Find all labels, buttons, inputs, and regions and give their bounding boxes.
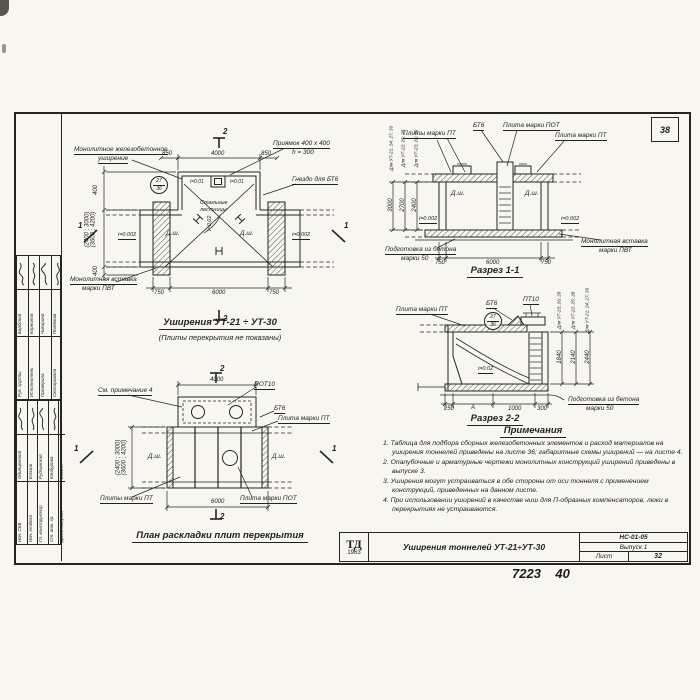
s11-height-value-2: 2400 <box>412 190 418 220</box>
signature <box>17 401 27 434</box>
logo-year: 1963 <box>347 550 360 556</box>
stamp-name: Рудзинский <box>38 434 48 481</box>
s22-height-label-0: Для УТ-23; 26; 29 <box>558 281 563 339</box>
section-mark-1-left: 1 <box>78 222 82 230</box>
plan-pit-slope-right: i=0.01 <box>230 180 244 186</box>
s22-slope: i=0.02 <box>478 366 493 374</box>
s22-prep-2: марки 50 <box>586 405 613 412</box>
plan-stairs-label-1: Стальные <box>200 200 228 206</box>
stamp-row: Дата выпуска 1963 г. <box>58 401 65 544</box>
s11-height-label-2: Для УТ-23; 26; 29 <box>415 119 420 177</box>
stamp-name: Барбский <box>17 289 28 336</box>
s22-detail-marker: 27 36 <box>484 312 502 330</box>
stamp-role: Дата выпуска <box>59 481 65 544</box>
note-item-2: 2. Опалубочные и арматурные чертежи моно… <box>383 459 683 477</box>
stamp-name: Полякова <box>52 289 63 336</box>
s22-dim-1: 250 <box>444 406 454 412</box>
s22-height-label-1: Для УТ-22; 25; 28 <box>572 281 577 339</box>
issue-row: Выпуск 1 <box>580 543 687 553</box>
section-mark-2-top: 2 <box>223 128 227 136</box>
signature <box>38 401 48 434</box>
s11-plates-pt-left: Плиты марки ПТ <box>403 130 456 139</box>
s11-plate-pt-right: Плита марки ПТ <box>555 132 607 141</box>
s22-bt6: БТ6 <box>486 300 497 309</box>
plan-expansion-joint-left: Д.ш. <box>166 230 180 237</box>
dim-bot-right: 750 <box>269 290 279 296</box>
s11-height-label-0: Для УТ-21; 24; 27; 30 <box>390 117 395 179</box>
sheet-row: Лист 32 <box>580 552 687 561</box>
stamp-role: Исполнитель <box>29 336 40 399</box>
stamp-name: 1963 г. <box>59 434 65 481</box>
blueprint-sheet: { "sheet": { "corner_number": "38", "han… <box>0 0 700 700</box>
dim-top-left: 850 <box>162 151 172 157</box>
signature <box>49 401 59 434</box>
sp-dim-bottom: 6000 <box>211 499 224 505</box>
s22-dim-4: 300 <box>537 406 547 412</box>
plan-slope-right: i=0.002 <box>292 232 310 240</box>
stamp-empty <box>59 401 65 434</box>
scan-smudge-small <box>2 44 6 53</box>
s22-pt10: ПТ10 <box>523 296 539 305</box>
signature <box>52 256 63 289</box>
scan-smudge <box>0 0 9 16</box>
sp-plates-pt: Плиты марки ПТ <box>100 495 153 504</box>
stamp-name: Елизов <box>28 434 38 481</box>
notes-block: Примечания 1. Таблица для подбора сборны… <box>383 426 683 516</box>
plan-slope-center: i=0.02 <box>207 211 213 235</box>
title-block: ТД 1963 Уширения тоннелей УТ-21÷УТ-30 НС… <box>339 532 688 562</box>
logo-cell: ТД 1963 <box>340 533 368 561</box>
section-2-2-drawing: Плита марки ПТ БТ6 ПТ10 27 36 i=0.02 Под… <box>390 292 685 432</box>
notes-title: Примечания <box>383 426 683 436</box>
s22-height-value-1: 2140 <box>571 342 577 372</box>
stamp-row: Исполнитель Корнилов <box>28 256 40 399</box>
stamp-row: Скопировала Полякова <box>51 256 63 399</box>
code-row: НС-01-05 <box>580 533 687 543</box>
plan-insert-label-2: марки ПВТ <box>82 285 115 292</box>
note-item-4: 4. При использовании уширений в качестве… <box>383 497 683 515</box>
logo-td: ТД <box>346 538 362 550</box>
stamp-row: Проверила Чикирина <box>39 256 51 399</box>
sheet-number-cell: 32 <box>629 552 687 561</box>
detail-sheet: 36 <box>487 321 499 328</box>
sidebar-stamp-upper: Рук. группы Барбский Исполнитель Корнило… <box>16 255 61 400</box>
sheet-number: 32 <box>654 553 662 560</box>
s11-insert-2: марки ПВТ <box>599 247 632 254</box>
plan-title: Уширения УТ-21 ÷ УТ-30 <box>115 318 325 328</box>
sidebar-stamp-lower: Нач. СКБ Одинцовский Нач. отдела Елизов … <box>16 400 61 545</box>
signature <box>40 256 51 289</box>
plan-widening-label-2: уширение <box>98 155 128 164</box>
signature <box>29 256 40 289</box>
plan-stairs-label-2: лестницы <box>200 207 227 213</box>
issue-number: Выпуск 1 <box>620 544 648 551</box>
dim-left-mid: (2400 ; 3000) (3600 ; 4200) <box>85 199 100 261</box>
dim-left-mid-2: (3600 ; 4200) <box>91 199 97 261</box>
title-cell: Уширения тоннелей УТ-21÷УТ-30 <box>368 533 579 561</box>
sp-section-1-right: 1 <box>332 445 336 453</box>
stamp-role: Проверила <box>40 336 51 399</box>
s11-joint-right: Д.ш. <box>525 190 539 197</box>
s22-height-value-0: 1840 <box>557 342 563 372</box>
plan-pit-slope-left: i=0.01 <box>190 180 204 186</box>
detail-number: 27 <box>485 315 501 320</box>
stamp-row: Нач. отдела Елизов <box>27 401 38 544</box>
dim-left-bot: 400 <box>93 259 99 283</box>
section-1-1-drawing: Плиты марки ПТ БТ6 Плита марки ПОТ Плита… <box>385 118 685 283</box>
plan-drawing: Монолитное железобетонное уширение Приям… <box>70 118 360 350</box>
stamp-role: Нач. отдела <box>28 481 38 544</box>
stamp-role: Рук. группы <box>17 336 28 399</box>
signature <box>17 256 28 289</box>
dim-top-right: 850 <box>261 151 271 157</box>
stamp-row: Нач. СКБ Одинцовский <box>17 401 27 544</box>
sp-plate-pot: Плита марки ПОТ <box>240 495 297 504</box>
s11-height-value-0: 3000 <box>388 190 394 220</box>
sp-section-2-bottom: 2 <box>220 513 224 521</box>
dim-bot-left: 750 <box>154 290 164 296</box>
s22-dim-3: 1000 <box>508 406 521 412</box>
s22-plate-pt: Плита марки ПТ <box>396 306 448 315</box>
slab-plan-title: План раскладки плит перекрытия <box>100 531 340 541</box>
stamp-role: Гл. конструктор <box>38 481 48 544</box>
sp-dim-left: (2400 ; 3000) (3600 ; 4200) <box>116 427 131 489</box>
plan-socket-label: Гнездо для БТ6 <box>292 176 338 185</box>
section-2-2-title: Разрез 2-2 <box>425 414 565 424</box>
detail-sheet: 36 <box>153 185 165 192</box>
s22-dim-2: А <box>471 405 475 411</box>
s11-slope-right: i=0.002 <box>561 216 579 224</box>
plan-expansion-joint-right: Д.ш. <box>240 230 254 237</box>
stamp-role: Ст. инж. гр. <box>49 481 59 544</box>
s11-height-value-1: 2700 <box>400 190 406 220</box>
s11-height-label-1: Для УТ-22; 25; 28 <box>402 119 407 177</box>
sp-bt6: БТ6 <box>274 405 285 414</box>
sp-section-2-top: 2 <box>220 365 224 373</box>
s11-bt6: БТ6 <box>473 122 484 131</box>
s22-height-value-2: 2440 <box>585 342 591 372</box>
section-1-1-title: Разрез 1-1 <box>425 266 565 276</box>
stamp-name: Корнилов <box>29 289 40 336</box>
stamp-row: Рук. группы Барбский <box>17 256 28 399</box>
stamp-name: Чикирина <box>40 289 51 336</box>
signature <box>28 401 38 434</box>
s22-height-label-2: Для УТ-21; 24; 27; 30 <box>586 279 591 341</box>
stamp-name: Кондурова <box>49 434 59 481</box>
plan-detail-marker: 27 36 <box>150 176 168 194</box>
sp-see-note: См. примечание 4 <box>98 387 152 396</box>
stamp-role: Скопировала <box>52 336 63 399</box>
section-1-1-geometry <box>385 118 685 283</box>
s11-plate-pot: Плита марки ПОТ <box>503 122 560 131</box>
dim-top-mid: 4000 <box>211 151 224 157</box>
stamp-name: Одинцовский <box>17 434 27 481</box>
code-column: НС-01-05 Выпуск 1 Лист 32 <box>579 533 687 561</box>
sp-section-1-left: 1 <box>74 445 78 453</box>
note-item-3: 3. Уширения могут устраиваться в обе сто… <box>383 478 683 496</box>
s11-prep-2: марки 50 <box>401 255 428 262</box>
plan-pit-label-2: h = 300 <box>292 149 314 156</box>
sheet-label: Лист <box>596 553 613 560</box>
stamp-role: Нач. СКБ <box>17 481 27 544</box>
s11-slope-left: i=0.002 <box>419 216 437 224</box>
sp-joint-right: Д.ш. <box>272 453 286 460</box>
handwritten-archive-number: 7223 40 <box>512 566 570 581</box>
plan-subtitle: (Плиты перекрытия не показаны) <box>115 334 325 342</box>
document-code: НС-01-05 <box>619 534 647 541</box>
sp-joint-left: Д.ш. <box>148 453 162 460</box>
stamp-row: Ст. инж. гр. Кондурова <box>48 401 59 544</box>
sp-plate-pt: Плита марки ПТ <box>278 415 330 424</box>
sp-dim-left-2: (3600 ; 4200) <box>122 427 128 489</box>
drawing-title: Уширения тоннелей УТ-21÷УТ-30 <box>403 542 545 552</box>
sheet-label-cell: Лист <box>580 552 629 561</box>
sp-dim-top: 4000 <box>210 377 223 383</box>
sp-pot10: ПОТ10 <box>254 381 275 390</box>
note-item-1: 1. Таблица для подбора сборных железобет… <box>383 440 683 458</box>
section-mark-1-right: 1 <box>344 222 348 230</box>
plan-slope-left: i=0.002 <box>118 232 136 240</box>
slab-plan-drawing: См. примечание 4 ПОТ10 БТ6 Плита марки П… <box>70 365 360 555</box>
stamp-row: Гл. конструктор Рудзинский <box>37 401 48 544</box>
s11-joint-left: Д.ш. <box>451 190 465 197</box>
dim-bot-mid: 6000 <box>212 290 225 296</box>
detail-number: 27 <box>151 179 167 184</box>
